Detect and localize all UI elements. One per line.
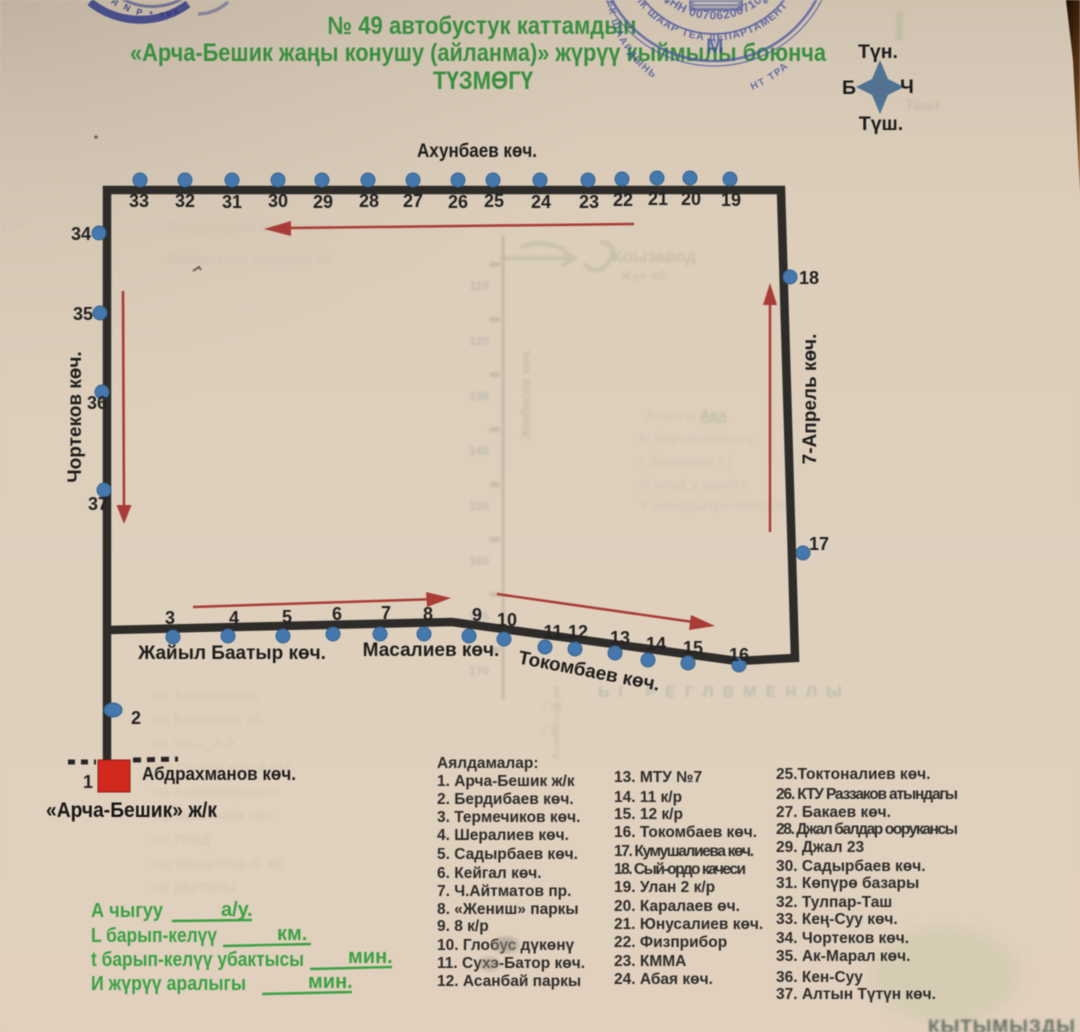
svg-text:13. МТУ №7: 13. МТУ №7 — [614, 769, 702, 786]
svg-text:ве Жеربл Э: ве Жеربл Э — [152, 735, 235, 752]
svg-text:км.: км. — [277, 923, 307, 945]
svg-text:Б: Б — [842, 77, 856, 99]
svg-text:12. Асанбай паркы: 12. Асанбай паркы — [437, 973, 581, 990]
svg-text:16. Токомбаев көч.: 16. Токомбаев көч. — [614, 824, 757, 841]
svg-text:М: М — [706, 35, 724, 58]
svg-text:Түш.: Түш. — [859, 113, 903, 135]
svg-text:29: 29 — [313, 192, 333, 212]
svg-text:25: 25 — [484, 191, 504, 211]
svg-text:18. Сый-ордо качеси: 18. Сый-ордо качеси — [614, 861, 746, 878]
svg-text:Тшы: Тшы — [905, 97, 939, 114]
svg-text:25.Токтоналиев көч.: 25.Токтоналиев көч. — [776, 766, 930, 783]
svg-text:мин.: мин. — [348, 946, 393, 968]
svg-text:13: 13 — [610, 628, 630, 648]
svg-text:32: 32 — [175, 191, 195, 211]
svg-text:И жгрд у аралгн: И жгрд у аралгн — [640, 476, 750, 492]
svg-text:КЫТЫМЫЗДЫ: КЫТЫМЫЗДЫ — [928, 1017, 1076, 1032]
svg-text:12: 12 — [568, 622, 588, 642]
svg-text:Жайыл Баатыр көч.: Жайыл Баатыр көч. — [137, 643, 326, 664]
svg-text:Ьлт: Ьлт — [2, 218, 26, 233]
svg-text:ТҮЗМӨГҮ: ТҮЗМӨГҮ — [433, 67, 533, 95]
svg-text:15: 15 — [683, 638, 703, 658]
svg-text:15. 12 к/р: 15. 12 к/р — [614, 806, 683, 823]
svg-text:21. Юнусалиев көч.: 21. Юнусалиев көч. — [614, 916, 763, 933]
svg-text:L барып-келүү: L барып-келүү — [91, 925, 218, 947]
svg-text:г барткелц т [: г барткелц т [ — [640, 453, 733, 469]
svg-text:16: 16 — [729, 645, 749, 665]
svg-text:120: 120 — [469, 334, 489, 348]
svg-text:4: 4 — [229, 608, 239, 628]
svg-text:24: 24 — [531, 192, 551, 212]
svg-text:30. Садырбаев көч.: 30. Садырбаев көч. — [776, 858, 926, 875]
svg-text:34. Чортеков көч.: 34. Чортеков көч. — [776, 930, 909, 947]
svg-text:20: 20 — [681, 189, 701, 209]
svg-text:6. Кейгал көч.: 6. Кейгал көч. — [437, 865, 542, 882]
svg-text:Аялдамалар:: Аялдамалар: — [437, 755, 539, 772]
svg-text:пб Аялдамалау: пб Аялдамалау — [152, 687, 259, 703]
svg-text:5. Садырбаев көч.: 5. Садырбаев көч. — [437, 846, 578, 863]
svg-text:14. 11 к/р: 14. 11 к/р — [614, 789, 682, 806]
svg-text:33: 33 — [129, 191, 149, 211]
svg-text:Ь барып-келгн у: Ь барып-келгн у — [640, 430, 754, 446]
svg-text:22. Физприбор: 22. Физприбор — [614, 934, 727, 951]
svg-text:150: 150 — [469, 499, 489, 513]
svg-text:130: 130 — [469, 389, 489, 403]
svg-text:8. «Жениш» паркы: 8. «Жениш» паркы — [437, 901, 579, 918]
svg-text:35: 35 — [73, 304, 93, 324]
svg-text:5: 5 — [282, 607, 292, 627]
svg-text:23: 23 — [579, 192, 599, 212]
svg-text:36: 36 — [87, 393, 107, 413]
svg-text:14: 14 — [646, 634, 666, 654]
svg-text:Ч: Ч — [900, 76, 914, 98]
svg-text:У жансрытрелking об: У жансрытрелking об — [640, 497, 790, 513]
svg-text:20: 20 — [540, 721, 556, 737]
svg-text:Аталгы Акл: Аталгы Акл — [645, 407, 726, 423]
svg-text:716: 716 — [540, 697, 564, 713]
svg-text:нц Балдибна аб: нц Балдибна аб — [152, 711, 263, 727]
svg-text:26: 26 — [448, 192, 468, 212]
svg-text:3. Термечиков көч.: 3. Термечиков көч. — [437, 809, 580, 826]
svg-text:170: 170 — [469, 664, 489, 678]
svg-text:t барып-келүү убактысы: t барып-келүү убактысы — [91, 949, 304, 971]
svg-text:30: 30 — [268, 191, 288, 211]
svg-text:9. 8 к/р: 9. 8 к/р — [437, 918, 489, 935]
svg-text:1. Арча-Бешик ж/к: 1. Арча-Бешик ж/к — [437, 773, 575, 790]
svg-text:29. Джал 23: 29. Джал 23 — [776, 839, 864, 856]
svg-text:Элебесов көч.: Элебесов көч. — [518, 348, 533, 440]
svg-text:Ахунбаев көч.: Ахунбаев көч. — [417, 141, 537, 162]
svg-text:31. Көпүрө базары: 31. Көпүрө базары — [776, 875, 919, 892]
svg-text:11: 11 — [543, 622, 562, 642]
svg-text:9: 9 — [472, 605, 482, 625]
svg-text:ол ТИКД: ол ТИКД — [152, 831, 210, 847]
svg-text:34: 34 — [71, 224, 91, 244]
svg-text:28: 28 — [359, 191, 379, 211]
svg-text:7-Апрель көч.: 7-Апрель көч. — [800, 334, 821, 465]
svg-text:тм АэрлtotКришсе: тм АэрлtotКришсе — [152, 783, 279, 799]
svg-text:22: 22 — [613, 190, 633, 210]
svg-text:7. Ч.Айтматов пр.: 7. Ч.Айтматов пр. — [437, 883, 571, 900]
svg-text:6: 6 — [332, 604, 342, 624]
svg-text:И жүрүү аралыгы: И жүрүү аралыгы — [91, 973, 246, 995]
svg-text:Коызавод: Коызавод — [612, 247, 696, 266]
svg-text:нв ДЕРЛsiЫ: нв ДЕРЛsiЫ — [152, 879, 236, 895]
svg-text:«Арча-Бешик» ж/к: «Арча-Бешик» ж/к — [46, 799, 217, 822]
svg-text:Масалиев көч.: Масалиев көч. — [363, 640, 500, 661]
svg-text:37. Алтын Түтүн көч.: 37. Алтын Түтүн көч. — [776, 986, 936, 1003]
svg-text:17. Кумушалиева көч.: 17. Кумушалиева көч. — [614, 843, 754, 860]
svg-text:33. Кең-Суу көч.: 33. Кең-Суу көч. — [776, 911, 898, 928]
svg-text:36. Кен-Суу: 36. Кен-Суу — [776, 969, 863, 986]
svg-text:35. Ак-Марал көч.: 35. Ак-Марал көч. — [776, 948, 910, 965]
svg-text:26. КТУ Раззаков атындагы: 26. КТУ Раззаков атындагы — [776, 786, 958, 803]
svg-text:110: 110 — [470, 279, 490, 293]
svg-text:Чортеков көч.: Чортеков көч. — [65, 351, 86, 482]
svg-text:1: 1 — [83, 772, 93, 792]
svg-text:19. Улан 2 к/р: 19. Улан 2 к/р — [614, 879, 715, 896]
svg-text:160: 160 — [469, 554, 489, 568]
svg-text:27. Бакаев көч.: 27. Бакаев көч. — [776, 804, 891, 821]
svg-text:24. Абая көч.: 24. Абая көч. — [614, 971, 713, 988]
svg-text:21: 21 — [648, 189, 668, 209]
svg-text:Абдрахманов көч.: Абдрахманов көч. — [142, 764, 296, 784]
svg-text:37: 37 — [88, 494, 108, 514]
svg-text:Түн.: Түн. — [858, 41, 898, 63]
svg-text:17: 17 — [809, 534, 829, 554]
svg-text:20. Каралаев өч.: 20. Каралаев өч. — [614, 898, 740, 915]
svg-text:2: 2 — [131, 708, 141, 728]
svg-text:4. Шералиев көч.: 4. Шералиев көч. — [437, 827, 569, 844]
svg-text:18: 18 — [799, 268, 819, 288]
svg-text:27: 27 — [403, 191, 423, 211]
svg-text:140: 140 — [469, 444, 489, 458]
svg-text:Берметтин тилкеси кө: Берметтин тилкеси кө — [168, 251, 333, 268]
svg-text:10: 10 — [497, 610, 517, 630]
svg-text:28. Джал балдар оорукансы: 28. Джал балдар оорукансы — [776, 821, 958, 838]
svg-text:Жул аб.: Жул аб. — [619, 268, 670, 283]
svg-text:8: 8 — [423, 604, 433, 624]
svg-text:3: 3 — [165, 608, 175, 628]
svg-text:мин.: мин. — [308, 971, 353, 993]
svg-text:23. КММА: 23. КММА — [614, 953, 686, 970]
svg-text:№ 49 автобустук каттамдын: № 49 автобустук каттамдын — [328, 12, 637, 40]
svg-text:А чыгуу: А чыгуу — [91, 900, 164, 922]
svg-text:7: 7 — [381, 603, 391, 623]
svg-text:19: 19 — [721, 190, 741, 210]
svg-text:32. Тулпар-Таш: 32. Тулпар-Таш — [776, 894, 892, 911]
svg-text:ещ Ммоychна п. зж: ещ Ммоychна п. зж — [152, 855, 284, 871]
svg-text:31: 31 — [222, 192, 242, 212]
svg-text:а/у.: а/у. — [221, 899, 253, 921]
svg-text:2. Бердибаев көч.: 2. Бердибаев көч. — [437, 791, 574, 808]
svg-text:11. Сухэ-Батор көч.: 11. Сухэ-Батор көч. — [437, 955, 585, 972]
